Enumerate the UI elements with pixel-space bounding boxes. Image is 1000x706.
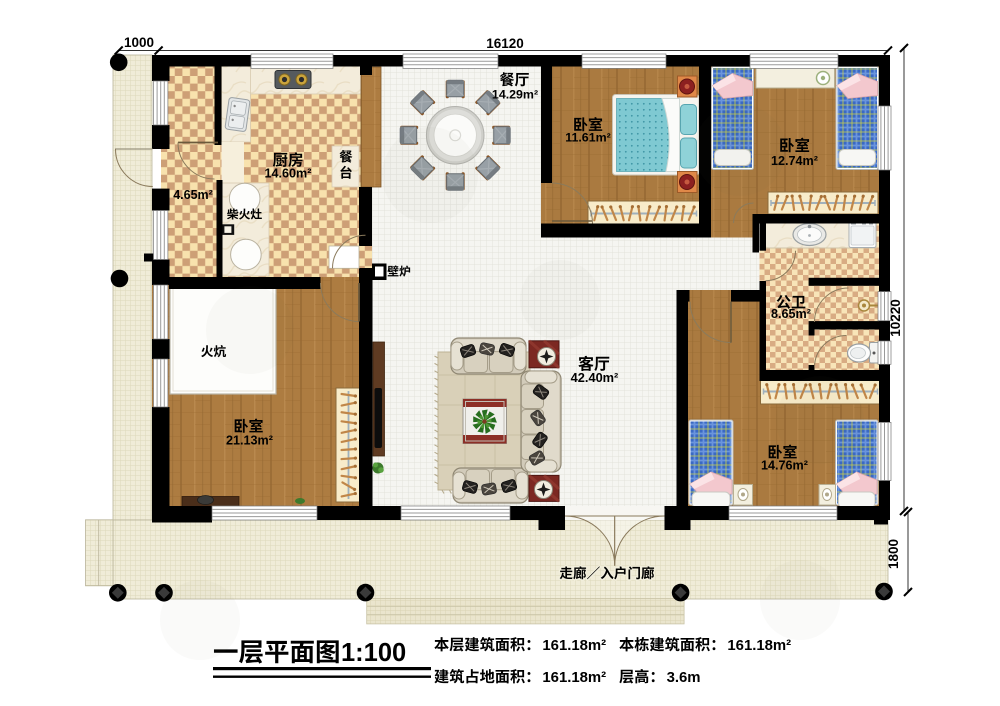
svg-text:1:100: 1:100 bbox=[341, 639, 406, 667]
svg-text:4.65m²: 4.65m² bbox=[173, 188, 213, 202]
svg-text:11.61m²: 11.61m² bbox=[565, 131, 610, 145]
svg-text:161.18m²: 161.18m² bbox=[542, 670, 606, 686]
svg-text:14.76m²: 14.76m² bbox=[761, 459, 808, 473]
svg-text:161.18m²: 161.18m² bbox=[542, 638, 606, 654]
svg-text:21.13m²: 21.13m² bbox=[226, 434, 273, 448]
svg-text:1000: 1000 bbox=[124, 35, 154, 50]
svg-text:14.60m²: 14.60m² bbox=[265, 167, 312, 181]
svg-text:3.6m: 3.6m bbox=[667, 670, 701, 686]
svg-text:10220: 10220 bbox=[888, 299, 903, 337]
svg-text:42.40m²: 42.40m² bbox=[571, 370, 619, 385]
svg-text:161.18m²: 161.18m² bbox=[727, 638, 791, 654]
svg-text:8.65m²: 8.65m² bbox=[771, 307, 811, 321]
svg-text:14.29m²: 14.29m² bbox=[492, 88, 538, 102]
svg-text:1800: 1800 bbox=[886, 539, 901, 569]
svg-text:16120: 16120 bbox=[486, 36, 524, 51]
